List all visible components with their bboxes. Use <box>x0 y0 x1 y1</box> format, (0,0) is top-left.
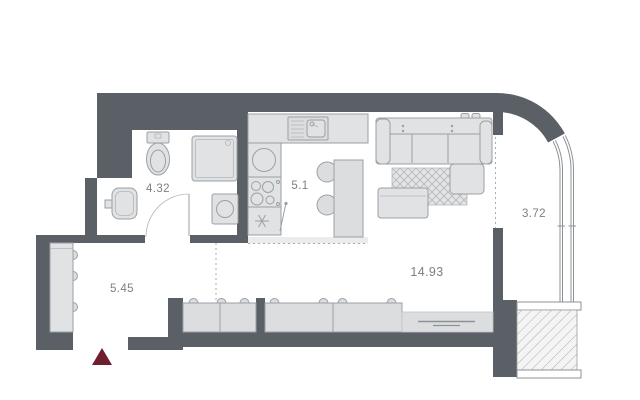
entrance-triangle-icon <box>92 348 112 365</box>
balcony <box>517 135 581 378</box>
shower-icon <box>192 136 237 181</box>
coffee-table-icon <box>378 188 428 218</box>
floor-plan: 4.32 5.1 14.93 5.45 3.72 <box>0 0 640 400</box>
wall-entry-left <box>36 332 73 350</box>
wall-balcony-column-upper <box>493 228 503 300</box>
wall-pier-hallway <box>168 298 183 347</box>
wall-top-bathroom <box>97 93 248 130</box>
storage-cabinet-left <box>183 299 256 333</box>
room-label-bathroom: 4.32 <box>146 183 170 195</box>
windowsill-radiator <box>402 312 493 332</box>
floor-plan-svg: 4.32 5.1 14.93 5.45 3.72 <box>0 0 640 400</box>
wall-left-niche <box>85 178 97 243</box>
wall-balcony-column-lower <box>493 300 517 377</box>
wall-curved-corner <box>497 93 565 143</box>
room-label-balcony: 3.72 <box>522 208 546 220</box>
wardrobe-icon <box>50 243 78 332</box>
storage-cabinet-right <box>265 299 402 333</box>
toilet-icon <box>147 132 170 175</box>
kitchen-threshold-strip <box>248 237 368 244</box>
washing-machine-icon <box>212 194 238 224</box>
wall-bathroom-kitchen <box>237 130 248 243</box>
wall-stub-cabinets <box>256 298 265 332</box>
bathroom-door <box>146 194 189 237</box>
wall-left-upper <box>97 130 132 178</box>
wall-bottom-main <box>183 332 493 347</box>
wall-bathroom-bottom-left <box>36 235 145 243</box>
wall-stub-balcony <box>493 112 503 135</box>
kitchen-sink-icon <box>288 117 328 140</box>
wall-top-main <box>248 93 497 112</box>
kitchen <box>248 114 368 237</box>
bathroom-sink-icon <box>105 188 137 219</box>
room-label-kitchen: 5.1 <box>291 180 308 192</box>
room-label-hallway: 5.45 <box>110 283 134 295</box>
room-label-living: 14.93 <box>410 265 443 279</box>
sofa-icon <box>376 114 492 165</box>
balcony-shaft <box>517 302 581 378</box>
sofa-chaise-icon <box>450 164 484 194</box>
dining-table-and-chairs <box>317 160 363 237</box>
dining-table-icon <box>334 160 363 237</box>
